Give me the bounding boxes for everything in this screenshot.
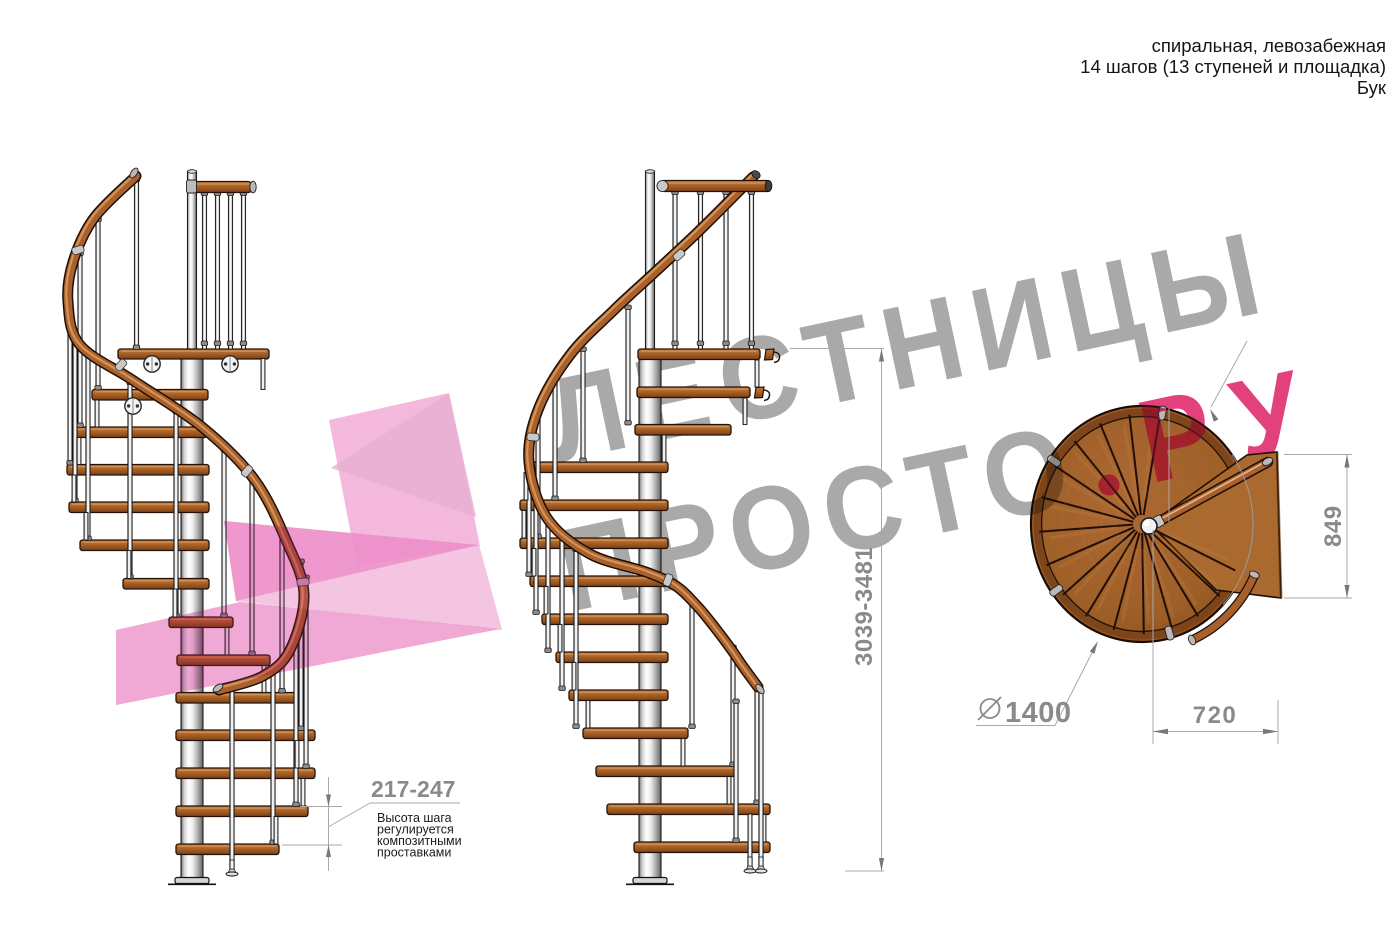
- svg-text:Бук: Бук: [1357, 77, 1387, 98]
- svg-text:217-247: 217-247: [371, 776, 455, 802]
- svg-text:720: 720: [1193, 702, 1238, 729]
- svg-text:14 шагов (13 ступеней и площад: 14 шагов (13 ступеней и площадка): [1080, 56, 1386, 77]
- svg-text:1400: 1400: [1005, 697, 1072, 729]
- svg-text:проставками: проставками: [377, 846, 451, 860]
- svg-text:спиральная, левозабежная: спиральная, левозабежная: [1152, 35, 1386, 56]
- svg-text:3039-3481: 3039-3481: [851, 547, 878, 666]
- svg-text:849: 849: [1320, 505, 1347, 547]
